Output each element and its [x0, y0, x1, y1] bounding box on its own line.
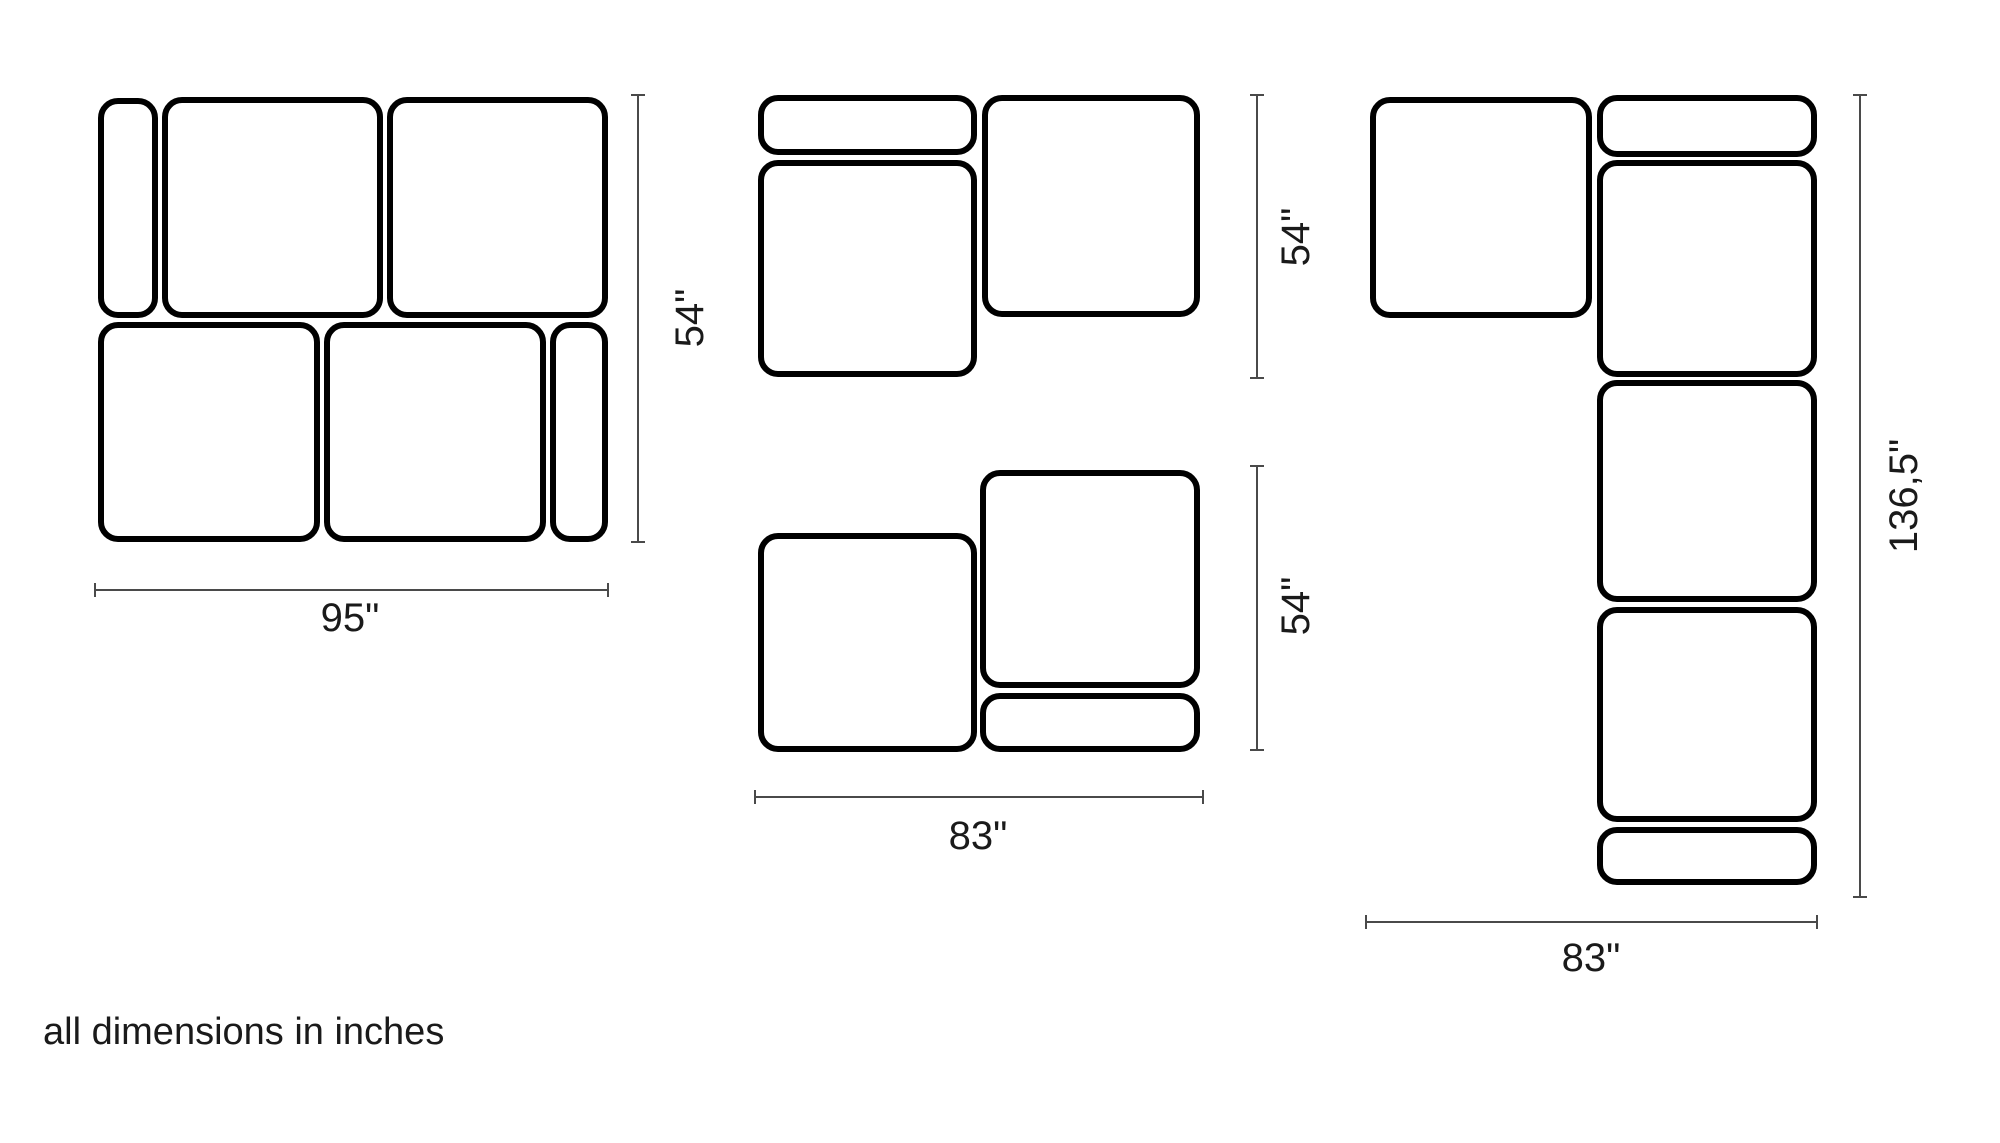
- dimension-tick: [1365, 915, 1367, 929]
- dimension-label: 83": [1562, 938, 1621, 978]
- narrow-module-top: [1597, 95, 1817, 157]
- dimension-tick: [1853, 94, 1867, 96]
- dimension-line-horizontal: [1366, 921, 1817, 923]
- seat-module-corner: [1370, 97, 1592, 318]
- seat-module: [1597, 380, 1817, 602]
- dimension-tick: [1853, 896, 1867, 898]
- sofa-configuration-corner-83x136: 136,5"83": [0, 0, 2000, 1143]
- dimension-label: 136,5": [1884, 439, 1924, 553]
- sofa-dimension-diagram: 54"95" 54" 54"83" 136,5"83" all dimensio…: [0, 0, 2000, 1143]
- units-note: all dimensions in inches: [43, 1012, 444, 1054]
- seat-module: [1597, 607, 1817, 822]
- dimension-line-vertical: [1859, 95, 1861, 897]
- dimension-tick: [1816, 915, 1818, 929]
- narrow-module-bottom: [1597, 827, 1817, 885]
- seat-module: [1597, 160, 1817, 377]
